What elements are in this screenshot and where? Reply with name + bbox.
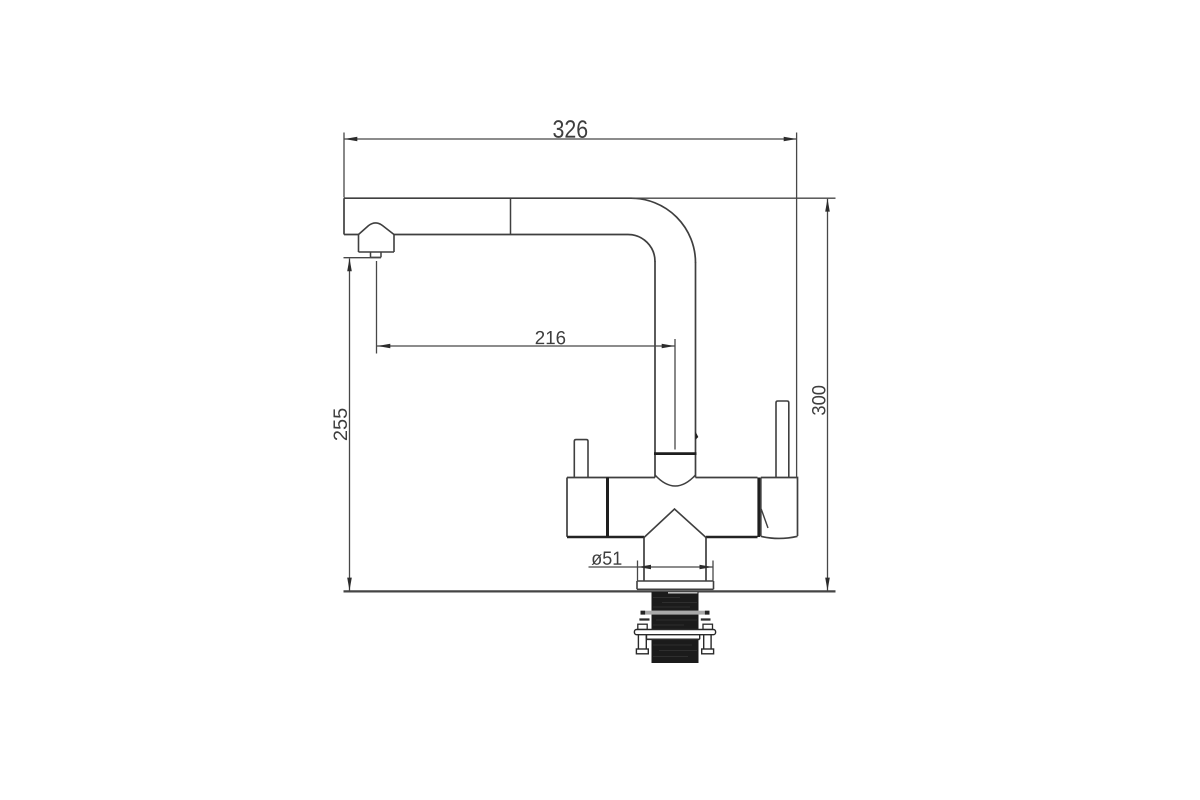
svg-text:300: 300 [810, 385, 831, 416]
svg-text:ø51: ø51 [591, 549, 622, 570]
svg-text:326: 326 [552, 116, 588, 144]
svg-text:216: 216 [535, 328, 566, 349]
svg-text:255: 255 [331, 408, 352, 441]
